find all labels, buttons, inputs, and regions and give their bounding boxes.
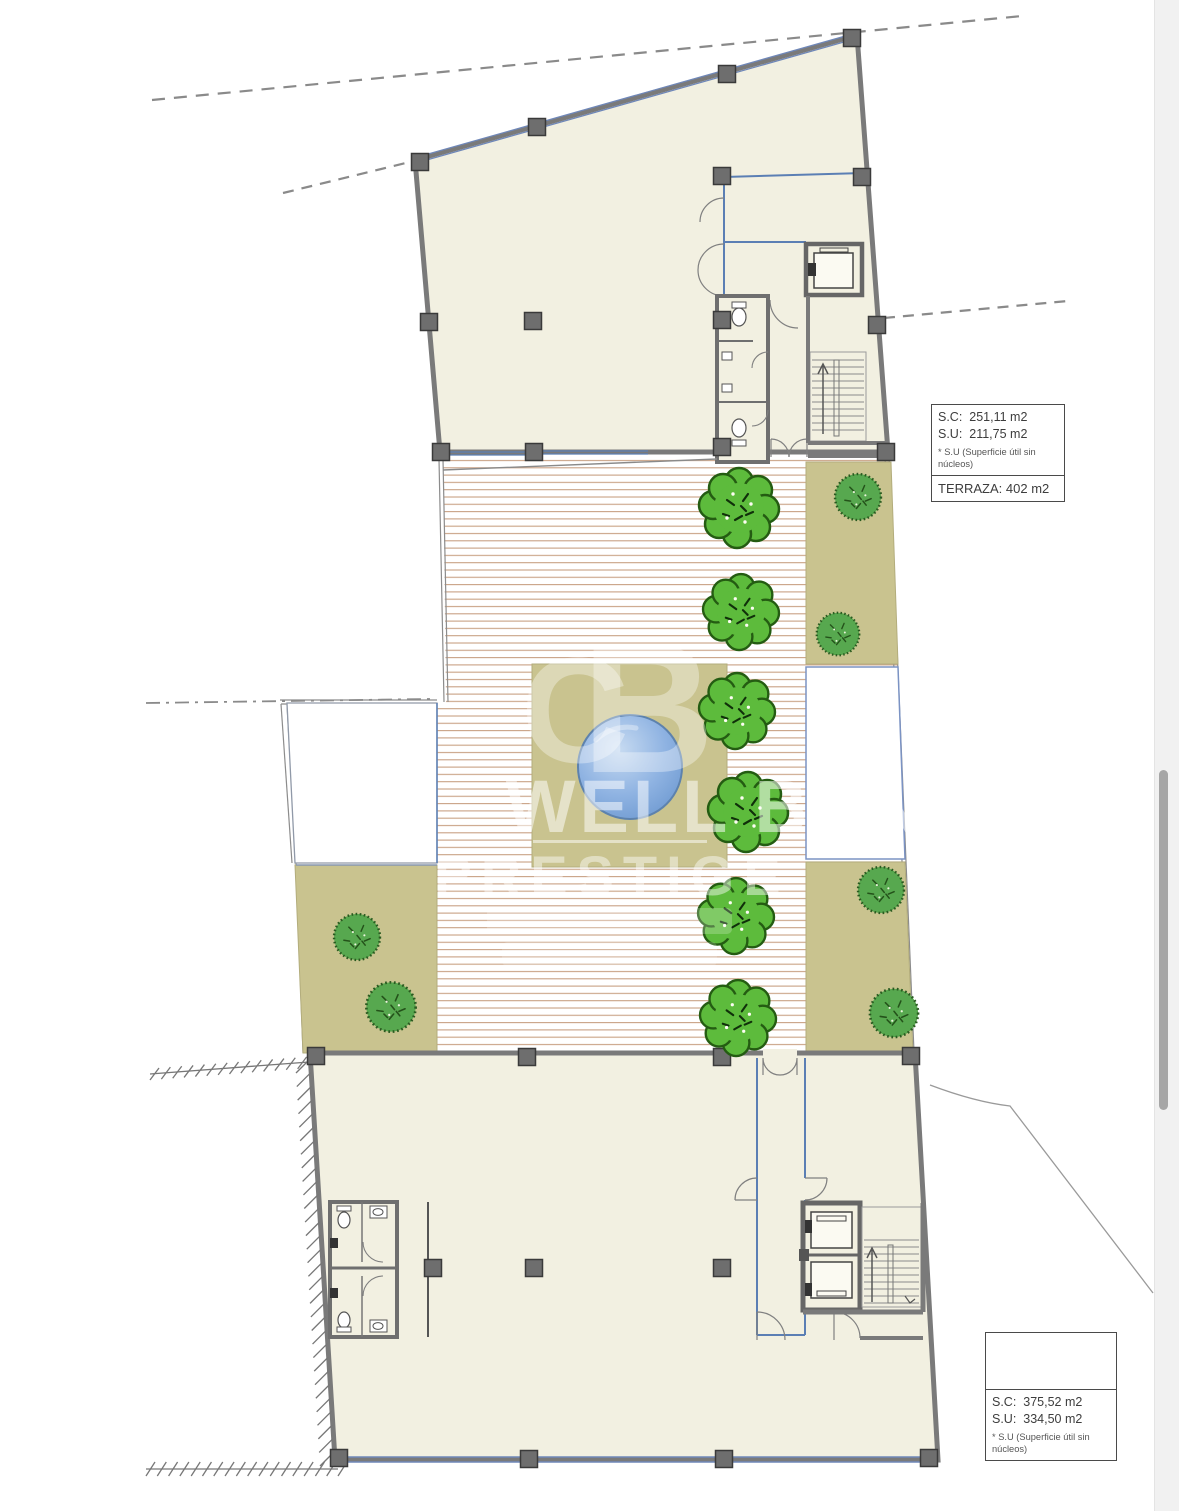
column bbox=[844, 30, 861, 47]
column bbox=[903, 1048, 920, 1065]
tree-icon bbox=[698, 878, 774, 954]
column bbox=[412, 154, 429, 171]
column bbox=[521, 1451, 538, 1468]
column bbox=[526, 1260, 543, 1277]
upper-elevator bbox=[806, 244, 862, 295]
neighbour-boundary-line bbox=[930, 1085, 1153, 1293]
area-info-box-upper: S.C: 251,11 m2 S.U: 211,75 m2 * S.U (Sup… bbox=[931, 404, 1065, 502]
column bbox=[714, 1260, 731, 1277]
bush-icon bbox=[870, 989, 918, 1037]
column bbox=[425, 1260, 442, 1277]
pool bbox=[578, 715, 682, 819]
scrollbar-thumb[interactable] bbox=[1159, 770, 1168, 1110]
lower-elevators bbox=[799, 1203, 860, 1310]
tree-icon bbox=[708, 772, 788, 852]
bush-icon bbox=[835, 474, 881, 520]
column bbox=[719, 66, 736, 83]
floor-plan-page: C B WELL BANK PRESTIGE S.C: 251,11 m2 S.… bbox=[0, 0, 1179, 1511]
upper-building bbox=[414, 33, 890, 470]
column bbox=[714, 168, 731, 185]
column bbox=[331, 1450, 348, 1467]
column bbox=[714, 439, 731, 456]
bush-icon bbox=[817, 613, 860, 656]
column bbox=[526, 444, 543, 461]
column bbox=[529, 119, 546, 136]
column bbox=[854, 169, 871, 186]
tree-icon bbox=[700, 980, 776, 1056]
column bbox=[878, 444, 895, 461]
column bbox=[525, 313, 542, 330]
lower-wc-block bbox=[330, 1202, 397, 1337]
bush-icon bbox=[334, 914, 380, 960]
column bbox=[716, 1451, 733, 1468]
terrace-area-value: TERRAZA: 402 m2 bbox=[932, 476, 1064, 501]
area-info-box-lower: S.C: 375,52 m2 S.U: 334,50 m2 * S.U (Sup… bbox=[985, 1332, 1117, 1461]
upper-su-note: * S.U (Superficie útil sin núcleos) bbox=[932, 444, 1064, 475]
column bbox=[921, 1450, 938, 1467]
upper-su-value: S.U: 211,75 m2 bbox=[938, 426, 1058, 443]
column bbox=[714, 312, 731, 329]
tree-icon bbox=[699, 673, 775, 749]
lower-box-empty-section bbox=[986, 1333, 1116, 1389]
lower-building bbox=[310, 1049, 938, 1462]
column bbox=[308, 1048, 325, 1065]
scrollbar-track[interactable] bbox=[1154, 0, 1179, 1511]
tree-icon bbox=[703, 574, 779, 650]
column bbox=[421, 314, 438, 331]
floor-plan-drawing: C B WELL BANK PRESTIGE bbox=[0, 0, 1179, 1511]
column bbox=[519, 1049, 536, 1066]
lower-sc-value: S.C: 375,52 m2 bbox=[992, 1394, 1110, 1411]
column bbox=[869, 317, 886, 334]
bush-icon bbox=[366, 982, 415, 1031]
lower-su-note: * S.U (Superficie útil sin núcleos) bbox=[986, 1429, 1116, 1460]
bush-icon bbox=[858, 867, 904, 913]
tree-icon bbox=[699, 468, 779, 548]
column bbox=[433, 444, 450, 461]
upper-sc-value: S.C: 251,11 m2 bbox=[938, 409, 1058, 426]
lower-su-value: S.U: 334,50 m2 bbox=[992, 1411, 1110, 1428]
